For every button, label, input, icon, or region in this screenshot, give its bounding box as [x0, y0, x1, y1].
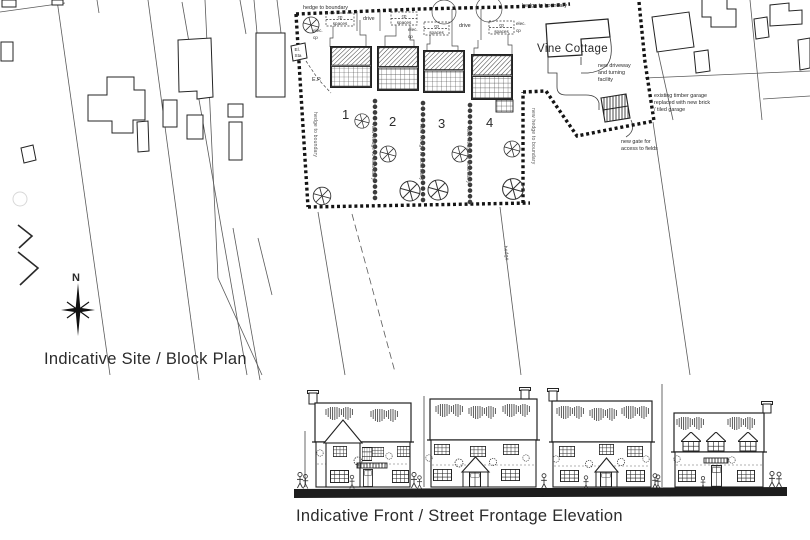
chimney: [549, 391, 557, 401]
window: [470, 446, 485, 456]
tree-icon: [380, 146, 396, 162]
driveway-note-line2: and turning: [598, 70, 625, 76]
parking-space-boxes: [326, 12, 514, 35]
site-plan-caption: Indicative Site / Block Plan: [44, 350, 247, 368]
elevation-house-4: [655, 402, 782, 490]
spaces-label: spaces: [494, 29, 509, 34]
trees: [303, 17, 523, 205]
person-icon: [303, 474, 308, 488]
window: [362, 448, 372, 461]
north-label: N: [72, 272, 80, 284]
cp-label: cp: [408, 34, 413, 39]
ground-line: [294, 487, 787, 498]
canopy: [704, 458, 728, 463]
new-hedge-label-2: new hedge to boundary: [418, 124, 424, 181]
north-arrow-icon: [61, 283, 95, 336]
door: [711, 466, 721, 487]
cp-label: cp: [313, 35, 318, 40]
ep-label: E.P.: [312, 77, 322, 83]
spaces-label: spaces: [397, 20, 412, 25]
cp-label: cp: [338, 15, 343, 20]
window: [627, 446, 642, 456]
garage-note-line1: existing timber garage: [654, 93, 707, 99]
gate-note-line1: new gate for: [621, 139, 651, 145]
cp-label: cp: [499, 23, 504, 28]
plot-4-house-footprint: [472, 54, 513, 99]
window: [737, 470, 754, 481]
window: [397, 446, 409, 456]
plot-2-number: 2: [389, 114, 396, 129]
window: [392, 470, 408, 482]
plot-3-house-footprint: [424, 50, 465, 92]
chimney: [309, 393, 317, 404]
balcony: [357, 463, 387, 468]
tree-icon: [400, 181, 420, 201]
window: [678, 470, 695, 481]
person-icon: [417, 476, 422, 489]
tree-icon: [428, 180, 448, 200]
drive-label-right: drive: [459, 23, 471, 29]
window: [503, 444, 518, 454]
roof: [552, 401, 652, 442]
cp-label: cp: [516, 28, 521, 33]
el-sta-label-line2: Sta: [295, 53, 302, 58]
hedge-field-label: hedge: [502, 246, 510, 262]
elevation-house-1: [297, 391, 422, 490]
window: [599, 444, 613, 454]
window: [330, 470, 348, 482]
driveway-note-line3: facility: [598, 77, 613, 83]
elec-label: elec.: [313, 28, 323, 33]
new-hedge-label-3: new hedge to boundary: [465, 127, 471, 184]
gate-note: new gate for access to fields: [621, 139, 658, 152]
tree-icon: [313, 187, 331, 205]
gate-note-line2: access to fields: [621, 146, 658, 152]
person-icon: [297, 472, 303, 488]
plot-4-number: 4: [486, 115, 493, 130]
elec-label: elec.: [516, 21, 526, 26]
drive-label-left: drive: [363, 16, 375, 22]
architectural-drawing: hedge to boundary hedge to boundary hedg…: [0, 0, 810, 540]
window: [372, 447, 383, 456]
neighbour-buildings-right: [652, 0, 810, 73]
elevation-caption: Indicative Front / Street Frontage Eleva…: [296, 507, 623, 525]
garage-note-line3: / tiled garage: [654, 107, 685, 113]
hedge-label-left: hedge to boundary: [312, 112, 318, 157]
person-icon: [655, 475, 660, 489]
window: [501, 469, 519, 480]
neighbour-buildings-left: [1, 0, 285, 163]
hedge-label-top-left: hedge to boundary: [303, 5, 348, 11]
person-icon: [411, 472, 417, 488]
new-hedge-label-right: new hedge to boundary: [530, 108, 536, 165]
garage-note-line2: replaced with new brick: [654, 100, 710, 106]
window: [434, 444, 449, 454]
driveway-note: new driveway and turning facility: [598, 63, 631, 83]
tree-icon: [504, 141, 520, 157]
person-icon: [769, 471, 775, 487]
driveway-note-line1: new driveway: [598, 63, 631, 69]
window: [559, 446, 574, 456]
left-edge-marks: [13, 192, 38, 285]
plot-3-number: 3: [438, 116, 445, 131]
person-icon: [776, 472, 782, 487]
spaces-label: spaces: [333, 21, 348, 26]
elevation-house-3: [548, 389, 658, 490]
spaces-label: spaces: [429, 30, 444, 35]
new-hedge-label-1: new hedge to boundary: [370, 124, 376, 181]
window: [560, 470, 578, 481]
door: [470, 472, 481, 486]
parking-labels: cp spaces cp spaces cp spaces cp spaces: [333, 14, 510, 36]
tree-icon: [503, 179, 524, 200]
new-garage-hatched: [601, 94, 630, 122]
chimney: [763, 404, 771, 413]
elevation-house-2: [426, 388, 547, 489]
street-elevation: Indicative Front / Street Frontage Eleva…: [294, 384, 787, 525]
person-icon: [541, 474, 547, 489]
window: [626, 470, 644, 481]
tree-icon: [355, 114, 369, 128]
hedge-label-top-right: hedge to boundary: [522, 3, 567, 9]
window: [433, 469, 451, 480]
field-gate-arc: [626, 120, 633, 137]
plot-1-house-footprint: [331, 46, 372, 87]
plot-4-garage-annex: [496, 100, 513, 112]
scanned-plan-page: hedge to boundary hedge to boundary hedg…: [0, 0, 810, 540]
plot-1-number: 1: [342, 107, 349, 122]
elec-label: elec.: [408, 27, 418, 32]
plot-2-house-footprint: [378, 46, 419, 90]
el-sta-label-line1: El.: [295, 47, 300, 52]
window: [333, 446, 346, 456]
door: [363, 469, 372, 486]
vine-cottage-label: Vine Cottage: [537, 43, 608, 55]
cp-label: cp: [434, 24, 439, 29]
door: [601, 472, 612, 486]
garage-note: existing timber garage replaced with new…: [654, 93, 710, 113]
cp-label: cp: [402, 14, 407, 19]
vine-cottage-area: [546, 19, 633, 137]
